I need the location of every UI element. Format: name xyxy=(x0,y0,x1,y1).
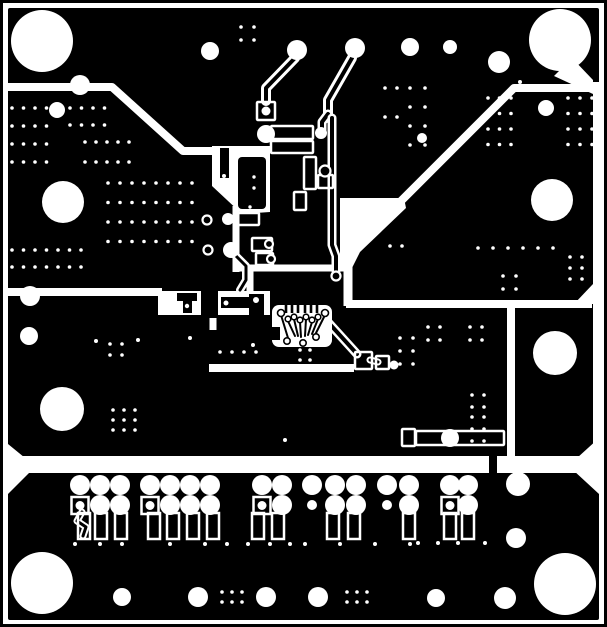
pcb-copper-layer-image xyxy=(0,0,607,627)
pcb-artwork-screenshot xyxy=(0,0,607,627)
ic-fanout xyxy=(266,303,332,347)
